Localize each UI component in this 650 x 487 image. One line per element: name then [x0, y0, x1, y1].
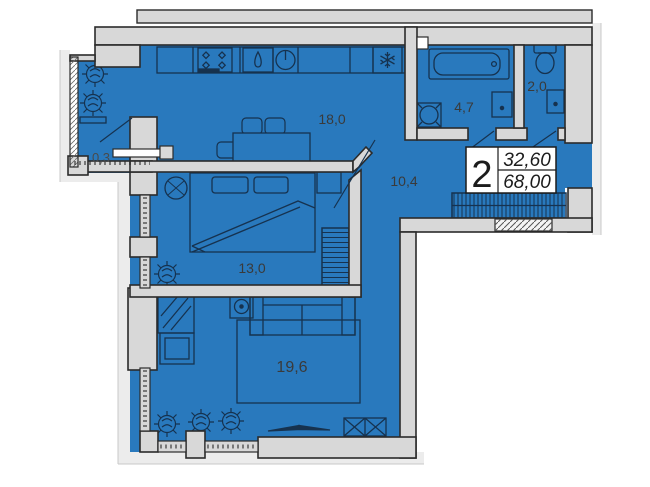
- adjacent-structure-strip: [137, 10, 592, 23]
- wall-bath-bottom: [496, 128, 527, 140]
- wall-bottom: [258, 437, 416, 458]
- duct-notch: [417, 37, 428, 49]
- stamp-total-area: 68,00: [503, 172, 551, 193]
- entrance-opening: [565, 143, 592, 188]
- wall-kitchen-bath: [405, 27, 417, 140]
- window-icon: [140, 257, 150, 288]
- balcony-glazing: [70, 57, 78, 167]
- area-stamp: 2 32,60 68,00: [466, 147, 556, 196]
- wall-kitchen-bedroom: [130, 161, 353, 172]
- wall-bedroom-living: [130, 285, 361, 297]
- coat-rack-hatch-icon: [452, 193, 566, 218]
- wall-right-upper: [565, 45, 592, 143]
- floor-plan-svg: 0,3 18,0 10,4 4,7 2,0 13,0 19,6 2 32,60 …: [0, 0, 650, 487]
- wc-area-label: 2,0: [527, 78, 547, 94]
- wall-pier-large: [128, 288, 157, 370]
- wall-top: [95, 27, 592, 45]
- shaft-hatch: [495, 219, 552, 231]
- kitchen-area-label: 18,0: [318, 111, 345, 127]
- wall-living-right: [400, 232, 416, 458]
- wall-pier: [140, 431, 158, 452]
- wall-bath-wc: [514, 45, 524, 128]
- wall-pier: [130, 237, 157, 257]
- wall-bedroom-right: [349, 170, 361, 297]
- wall-bath-bottom: [558, 128, 565, 140]
- stamp-living-area: 32,60: [503, 150, 551, 171]
- balcony-area-label: 0,3: [92, 150, 110, 165]
- living-area-label: 19,6: [276, 359, 307, 376]
- hallway-area-label: 10,4: [390, 173, 417, 189]
- floor-plan-canvas: 0,3 18,0 10,4 4,7 2,0 13,0 19,6 2 32,60 …: [0, 0, 650, 487]
- wall-step: [95, 45, 140, 67]
- wardrobe-hatch-icon: [322, 228, 349, 288]
- wall-bath-bottom: [417, 128, 468, 140]
- bedroom-area-label: 13,0: [238, 260, 265, 276]
- wall-pier: [186, 431, 205, 458]
- window-icon: [140, 195, 150, 237]
- stamp-rooms-count: 2: [471, 154, 492, 196]
- bathroom-area-label: 4,7: [454, 99, 474, 115]
